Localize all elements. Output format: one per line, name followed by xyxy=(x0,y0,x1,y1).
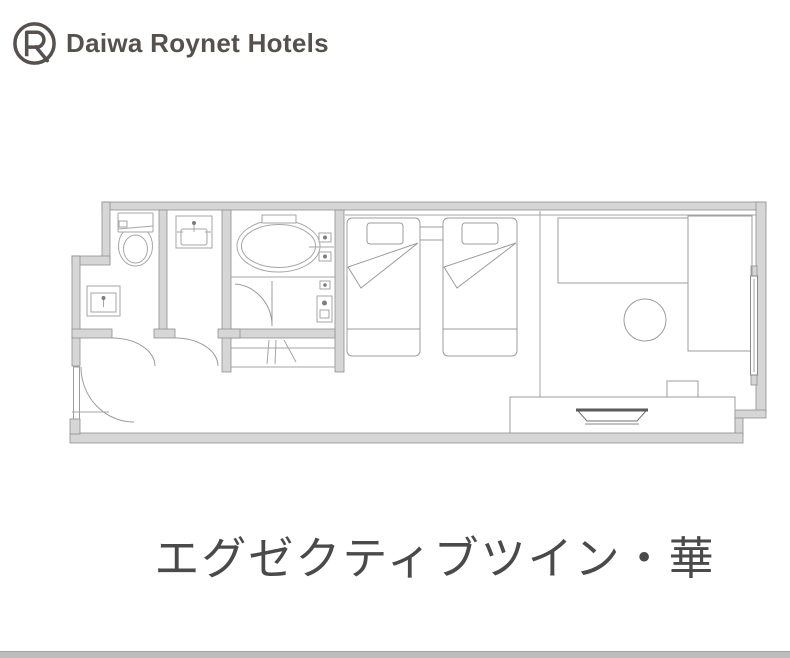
wall-washroom-right xyxy=(222,210,231,372)
powder-sink xyxy=(87,286,120,316)
wall-bottom xyxy=(70,433,743,443)
side-counter xyxy=(688,216,752,351)
duvet-fold xyxy=(348,243,418,288)
shower-fixtures xyxy=(231,277,335,322)
wall-entry-post xyxy=(70,419,80,434)
hanger-icon xyxy=(284,340,296,362)
pillow xyxy=(367,223,403,244)
sofa-desk xyxy=(558,218,688,283)
bathroom-door xyxy=(235,281,272,326)
closet xyxy=(231,340,335,367)
hanger-icon xyxy=(267,340,269,364)
twin-bed-left xyxy=(347,218,420,356)
toilet-fixture xyxy=(118,213,153,266)
wall-wet-band-left xyxy=(72,329,112,338)
nightstand xyxy=(420,227,443,240)
wall-wet-band-mid xyxy=(154,329,175,338)
bottom-bar xyxy=(0,651,790,658)
wall-wet-band-right xyxy=(218,329,240,338)
toilet-door-swing xyxy=(112,338,155,366)
wall-top xyxy=(102,202,766,210)
page: Daiwa Roynet Hotels xyxy=(0,0,790,658)
room-type-caption: エグゼクティブツイン・華 xyxy=(80,522,790,587)
wall-toilet-right xyxy=(159,210,167,331)
wash-basin xyxy=(176,216,212,248)
tv-board xyxy=(510,397,735,433)
hanger-icon xyxy=(275,340,276,364)
wall-bathroom-right xyxy=(335,210,344,372)
entrance-door-swing xyxy=(81,367,134,422)
bathroom-door-swing xyxy=(235,284,272,326)
bedroom xyxy=(345,211,758,433)
wall-closet-band xyxy=(231,329,335,338)
tv-chair xyxy=(667,381,698,397)
wall-left-lower xyxy=(72,256,80,366)
twin-bed-right xyxy=(443,218,517,356)
wall-left-upper xyxy=(102,202,110,264)
entrance-door-leaf xyxy=(74,367,80,419)
wall-window-stub-bottom xyxy=(751,374,757,385)
round-stool xyxy=(624,299,666,341)
wall-step-h xyxy=(734,410,766,418)
pillow xyxy=(462,223,498,244)
washroom-door-swing xyxy=(175,338,218,366)
entrance-door xyxy=(72,367,134,422)
bathtub xyxy=(237,215,334,272)
duvet-fold xyxy=(444,243,516,288)
window xyxy=(751,276,758,375)
